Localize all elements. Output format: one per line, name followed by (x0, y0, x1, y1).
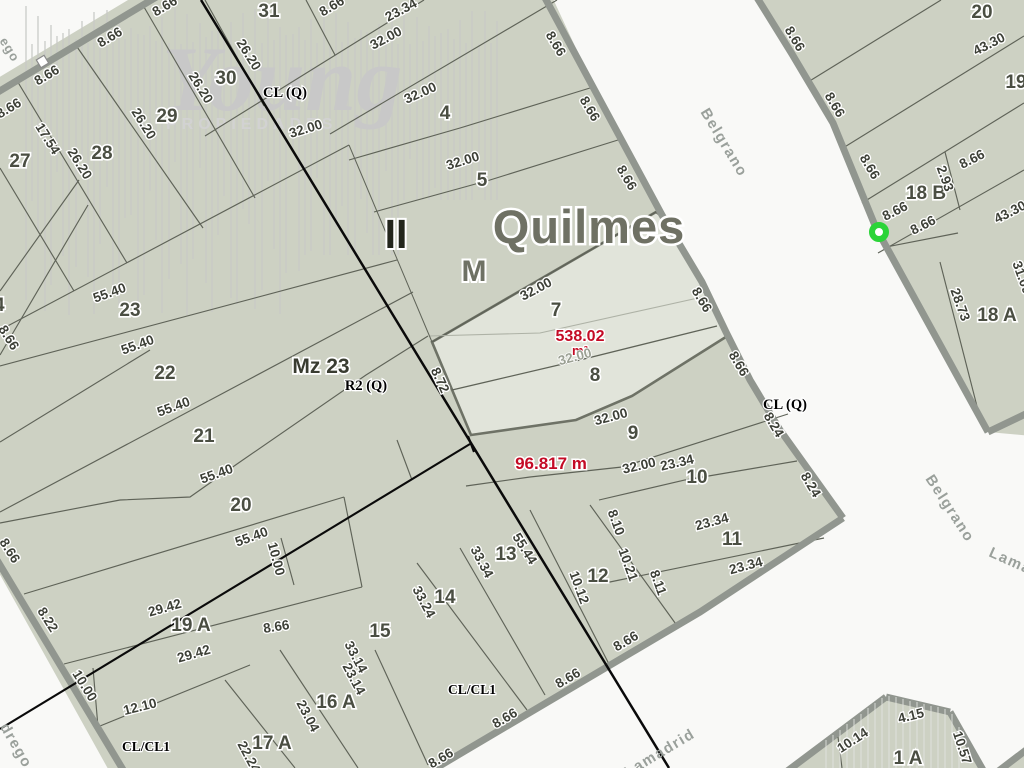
svg-text:15: 15 (369, 621, 391, 642)
svg-text:1 A: 1 A (894, 748, 923, 768)
svg-text:CL/CL1: CL/CL1 (448, 682, 496, 697)
svg-text:23: 23 (119, 300, 140, 321)
svg-text:8: 8 (590, 365, 601, 386)
svg-text:CL (Q): CL (Q) (763, 397, 807, 413)
svg-text:20: 20 (971, 2, 992, 23)
svg-text:27: 27 (9, 151, 30, 172)
svg-text:20: 20 (230, 495, 251, 516)
svg-text:R2 (Q): R2 (Q) (345, 378, 387, 394)
svg-text:29: 29 (156, 106, 177, 127)
svg-text:13: 13 (495, 544, 516, 565)
svg-text:7: 7 (551, 300, 562, 321)
svg-text:CL/CL1: CL/CL1 (122, 739, 170, 754)
svg-text:CL (Q): CL (Q) (263, 85, 307, 101)
svg-text:Mz 23: Mz 23 (292, 355, 349, 378)
svg-text:12: 12 (587, 566, 608, 587)
svg-text:24: 24 (0, 295, 5, 316)
svg-text:14: 14 (434, 587, 456, 608)
svg-text:18 A: 18 A (977, 305, 1017, 326)
svg-text:19: 19 (1005, 72, 1024, 93)
svg-text:16 A: 16 A (316, 692, 356, 713)
svg-text:Quilmes: Quilmes (493, 200, 685, 253)
svg-text:II: II (385, 211, 408, 257)
svg-text:30: 30 (215, 68, 236, 89)
svg-text:M: M (462, 255, 487, 288)
svg-text:9: 9 (628, 423, 639, 444)
svg-text:22: 22 (154, 363, 175, 384)
svg-text:17 A: 17 A (252, 733, 292, 754)
svg-text:31: 31 (258, 1, 280, 22)
svg-text:4: 4 (440, 103, 451, 124)
svg-text:96.817 m: 96.817 m (515, 454, 587, 473)
svg-text:21: 21 (193, 426, 215, 447)
svg-text:11: 11 (722, 529, 743, 550)
svg-text:10: 10 (686, 467, 707, 488)
svg-text:19 A: 19 A (171, 615, 211, 636)
svg-text:28: 28 (91, 143, 112, 164)
svg-text:5: 5 (477, 170, 488, 191)
